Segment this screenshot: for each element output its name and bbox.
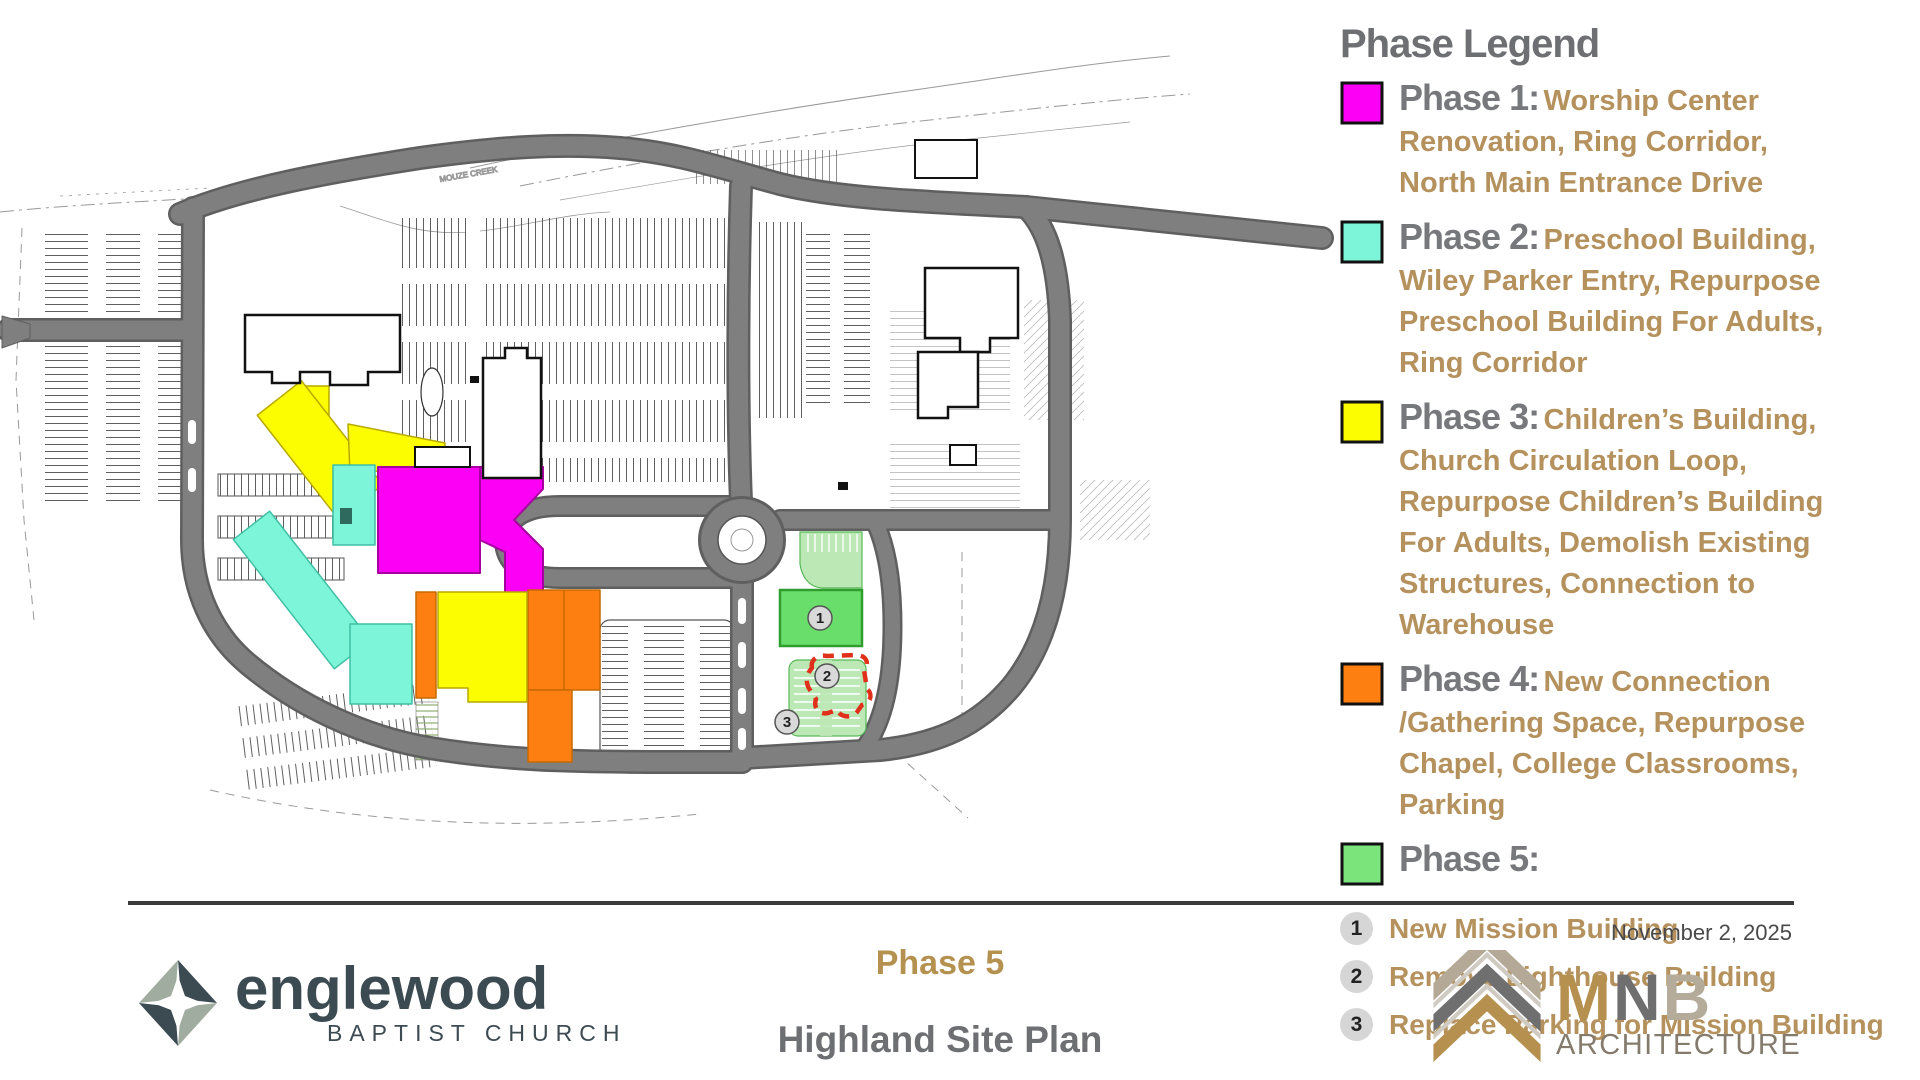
phase1-swatch-icon: [1340, 81, 1384, 125]
phase4-swatch-icon: [1340, 662, 1384, 706]
sheet-plan-title: Highland Site Plan: [640, 1019, 1240, 1061]
englewood-tagline: BAPTIST CHURCH: [327, 1020, 627, 1047]
mnb-logo: MNB ARCHITECTURE: [1428, 950, 1801, 1062]
englewood-name: englewood: [235, 960, 627, 1018]
phase2-label: Phase 2:: [1399, 216, 1539, 257]
building-topright: [915, 140, 977, 178]
sheet-phase-title: Phase 5: [640, 944, 1240, 983]
phase1-arm: [480, 467, 543, 597]
legend-row-phase1: Phase 1: Worship Center Renovation, Ring…: [1340, 79, 1906, 206]
englewood-diamond-icon: [135, 958, 221, 1048]
phase-legend: Phase Legend Phase 1: Worship Center Ren…: [1340, 22, 1906, 1041]
phase4-sliver: [416, 592, 436, 698]
mnb-name: MNB: [1556, 969, 1801, 1025]
svg-text:3: 3: [783, 714, 791, 731]
phase5-areas: [780, 532, 870, 736]
phase4-label: Phase 4:: [1399, 658, 1539, 699]
phase1-worship-center: [378, 467, 480, 573]
building-center: [483, 348, 541, 478]
phase3-label: Phase 3:: [1399, 396, 1539, 437]
plan-marker-3: 3: [775, 710, 799, 734]
date-label: November 2, 2025: [1611, 920, 1792, 946]
footer-divider: [128, 901, 1794, 905]
phase2-band: [333, 465, 375, 545]
phase3-swatch-icon: [1340, 400, 1384, 444]
phase3-description: Children’s Building, Church Circulation …: [1399, 404, 1823, 641]
pond: [421, 368, 443, 416]
plan-marker-2: 2: [815, 664, 839, 688]
phase1-label: Phase 1:: [1399, 77, 1539, 118]
phase4-tall: [528, 690, 572, 762]
legend-title: Phase Legend: [1340, 22, 1906, 67]
note-2-badge: 2: [1340, 960, 1373, 993]
englewood-logo: englewood BAPTIST CHURCH: [135, 958, 627, 1048]
phase3-south-building: [438, 592, 527, 702]
building-northeast-b: [918, 352, 978, 418]
creek-label: MOUZE CREEK: [439, 165, 499, 184]
legend-row-phase4: Phase 4: New Connection /Gathering Space…: [1340, 660, 1906, 828]
parking-lots: [45, 150, 1150, 790]
legend-row-phase3: Phase 3: Children’s Building, Church Cir…: [1340, 398, 1906, 648]
legend-row-phase2: Phase 2: Preschool Building, Wiley Parke…: [1340, 218, 1906, 386]
phase2-hall: [350, 624, 412, 704]
site-plan: MOUZE CREEK: [0, 0, 1340, 900]
roundabout-icon: [698, 496, 786, 584]
mnb-tagline: ARCHITECTURE: [1556, 1029, 1801, 1062]
svg-text:2: 2: [823, 668, 831, 685]
mnb-chevrons-icon: [1428, 950, 1546, 1062]
phase5-parking-north: [800, 532, 862, 588]
svg-text:1: 1: [816, 610, 824, 627]
note-3-badge: 3: [1340, 1008, 1373, 1041]
phase2-swatch-icon: [1340, 220, 1384, 264]
building-northwest: [245, 315, 400, 385]
phase5-label: Phase 5:: [1399, 838, 1539, 879]
note-1-badge: 1: [1340, 912, 1373, 945]
slide: MOUZE CREEK: [0, 0, 1920, 1080]
sheet-titles: Phase 5 Highland Site Plan: [640, 944, 1240, 1061]
legend-row-phase5: Phase 5:: [1340, 840, 1906, 886]
building-stage: [415, 447, 470, 467]
phase5-swatch-icon: [1340, 842, 1384, 886]
plan-marker-1: 1: [808, 606, 832, 630]
building-northeast-c: [950, 445, 976, 465]
